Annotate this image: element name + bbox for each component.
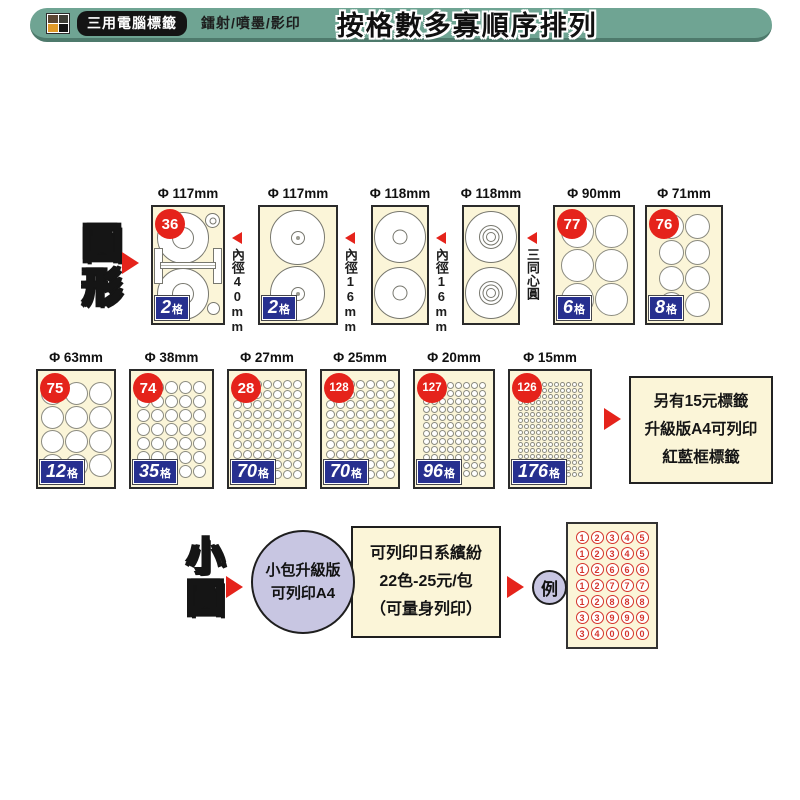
label-circle <box>293 400 302 409</box>
box-line: （可量身列印） <box>355 596 497 624</box>
label-circle <box>471 446 478 453</box>
label-circle <box>578 454 583 459</box>
label-circle <box>524 442 529 447</box>
label-circle <box>560 430 565 435</box>
label-circle <box>346 430 355 439</box>
spool-bar <box>160 262 216 269</box>
label-circle <box>89 454 112 477</box>
example-number-circle: 9 <box>636 611 649 624</box>
label-circle <box>560 382 565 387</box>
example-number-circle: 6 <box>621 563 634 576</box>
label-circle <box>233 430 242 439</box>
label-circle <box>326 440 335 449</box>
inner-diameter-annotation: 三同心圓 <box>523 232 541 300</box>
cell-count-number: 70 <box>330 461 350 482</box>
cd-ring <box>486 288 496 298</box>
cell-count-number: 176 <box>518 461 548 482</box>
logo-square <box>59 24 69 32</box>
label-circle <box>566 448 571 453</box>
diameter-label: Φ 38mm <box>145 350 199 366</box>
arrow-left-icon <box>527 232 537 244</box>
label-circle <box>518 418 523 423</box>
label-circle <box>179 395 192 408</box>
label-circle <box>530 424 535 429</box>
label-sheet-card: Φ 38mm7435格 <box>129 350 214 489</box>
label-circle <box>165 437 178 450</box>
label-circle <box>578 400 583 405</box>
inner-diameter-annotation: 內徑40mm <box>228 232 246 334</box>
label-circle <box>273 410 282 419</box>
label-circle <box>283 430 292 439</box>
label-circle <box>326 420 335 429</box>
cell-count-badge: 70格 <box>324 460 368 484</box>
bubble-line: 可列印A4 <box>271 582 335 605</box>
cell-count-badge: 176格 <box>512 460 566 484</box>
example-number-circle: 2 <box>591 595 604 608</box>
logo-square <box>48 24 58 32</box>
label-circle <box>273 440 282 449</box>
label-circle <box>572 394 577 399</box>
label-sheet: 7435格 <box>129 369 214 489</box>
label-circle <box>263 450 272 459</box>
example-number-circle: 3 <box>576 627 589 640</box>
label-circle <box>463 382 470 389</box>
example-number-circle: 2 <box>591 547 604 560</box>
label-circle <box>463 422 470 429</box>
label-circle <box>578 418 583 423</box>
label-sheet: 768格 <box>645 205 723 325</box>
label-circle <box>356 420 365 429</box>
label-sheet-card: Φ 117mm362格 <box>151 186 225 325</box>
label-circle <box>572 388 577 393</box>
cell-count-number: 70 <box>237 461 257 482</box>
label-circle <box>566 388 571 393</box>
cell-count-badge: 12格 <box>40 460 84 484</box>
label-circle <box>376 470 385 479</box>
label-circle <box>386 470 395 479</box>
label-circle <box>193 437 206 450</box>
cell-count-unit: 格 <box>160 465 171 481</box>
label-circle <box>548 448 553 453</box>
label-circle <box>471 422 478 429</box>
label-circle <box>524 418 529 423</box>
label-circle <box>179 437 192 450</box>
diameter-label: Φ 118mm <box>461 186 522 202</box>
header-bar: 三用電腦標籤 鐳射/噴墨/影印 按格數多寡順序排列 <box>30 8 772 42</box>
logo-square <box>59 15 69 23</box>
label-circle <box>524 406 529 411</box>
label-circle <box>479 462 486 469</box>
label-circle <box>293 470 302 479</box>
example-number-circle: 1 <box>576 595 589 608</box>
label-circle <box>471 414 478 421</box>
label-circle <box>283 450 292 459</box>
small-round-row: 小圓 小包升級版 可列印A4 可列印日系繽紛 22色-25元/包 （可量身列印）… <box>182 520 658 649</box>
label-circle <box>41 406 64 429</box>
label-circle <box>578 424 583 429</box>
label-circle <box>578 382 583 387</box>
label-circle <box>65 406 88 429</box>
label-circle <box>518 412 523 417</box>
label-circle <box>578 448 583 453</box>
arrow-right-icon <box>604 408 621 430</box>
label-circle <box>542 418 547 423</box>
label-circle <box>253 430 262 439</box>
label-circle <box>293 420 302 429</box>
label-sheet <box>462 205 520 325</box>
label-circle <box>386 400 395 409</box>
label-circle <box>463 430 470 437</box>
label-circle <box>273 430 282 439</box>
label-circle <box>455 430 462 437</box>
label-circle <box>455 438 462 445</box>
diameter-label: Φ 90mm <box>567 186 621 202</box>
label-circle <box>423 422 430 429</box>
small-circle <box>207 302 220 315</box>
label-circle <box>463 462 470 469</box>
label-circle <box>572 406 577 411</box>
label-circle <box>536 406 541 411</box>
label-circle <box>548 430 553 435</box>
arrow-left-icon <box>232 232 242 244</box>
cell-count-unit: 格 <box>574 301 585 317</box>
arrow-left-icon <box>436 232 446 244</box>
label-circle <box>561 249 594 282</box>
arrow-right-icon <box>122 252 139 274</box>
label-sheet-card: Φ 25mm12870格 <box>320 350 400 489</box>
label-circle <box>439 438 446 445</box>
label-circle <box>530 406 535 411</box>
label-circle <box>554 454 559 459</box>
label-circle <box>65 430 88 453</box>
label-circle <box>566 466 571 471</box>
label-circle <box>336 430 345 439</box>
example-number-circle: 5 <box>636 531 649 544</box>
label-circle <box>243 440 252 449</box>
label-circle <box>548 442 553 447</box>
print-types-label: 鐳射/噴墨/影印 <box>201 13 301 33</box>
label-circle <box>572 436 577 441</box>
label-circle <box>572 472 577 477</box>
label-circle <box>193 451 206 464</box>
example-number-circle: 3 <box>606 531 619 544</box>
label-circle <box>283 400 292 409</box>
annotation-text: 內徑16mm <box>434 248 448 334</box>
label-circle <box>542 448 547 453</box>
label-circle <box>263 400 272 409</box>
label-circle <box>376 410 385 419</box>
label-circle <box>463 406 470 413</box>
label-circle <box>566 400 571 405</box>
label-circle <box>560 412 565 417</box>
label-circle <box>479 454 486 461</box>
label-circle <box>518 442 523 447</box>
label-circle <box>548 418 553 423</box>
label-circle <box>447 382 454 389</box>
label-sheet-card: Φ 63mm7512格 <box>36 350 116 489</box>
label-circle <box>524 448 529 453</box>
label-circle <box>542 382 547 387</box>
label-circle <box>548 394 553 399</box>
color-pack-box: 可列印日系繽紛 22色-25元/包 （可量身列印） <box>351 526 501 638</box>
label-circle <box>447 406 454 413</box>
label-circle <box>346 450 355 459</box>
label-circle <box>283 420 292 429</box>
label-circle <box>293 430 302 439</box>
label-circle <box>578 394 583 399</box>
label-circle <box>439 422 446 429</box>
label-circle <box>179 451 192 464</box>
label-circle <box>560 448 565 453</box>
label-circle <box>151 437 164 450</box>
example-number-circle: 8 <box>636 595 649 608</box>
label-circle <box>376 400 385 409</box>
label-circle <box>423 406 430 413</box>
cd-label <box>465 267 517 319</box>
label-circle <box>595 283 628 316</box>
label-circle <box>193 465 206 478</box>
logo-square <box>48 15 58 23</box>
label-circle <box>548 412 553 417</box>
label-circle <box>554 418 559 423</box>
cell-count-unit: 格 <box>351 465 362 481</box>
item-number-badge: 28 <box>231 373 261 403</box>
label-circle <box>193 409 206 422</box>
label-circle <box>366 440 375 449</box>
label-circle <box>293 460 302 469</box>
box-line: 22色-25元/包 <box>355 568 497 596</box>
label-circle <box>193 381 206 394</box>
label-circle <box>233 450 242 459</box>
label-circle <box>542 406 547 411</box>
label-circle <box>326 450 335 459</box>
label-circle <box>356 440 365 449</box>
label-circle <box>479 406 486 413</box>
label-circle <box>273 390 282 399</box>
label-circle <box>263 410 272 419</box>
label-circle <box>685 214 710 239</box>
label-circle <box>548 406 553 411</box>
label-circle <box>137 437 150 450</box>
diameter-label: Φ 25mm <box>333 350 387 366</box>
item-number-badge: 126 <box>512 373 542 403</box>
label-circle <box>572 430 577 435</box>
label-circle <box>542 436 547 441</box>
example-number-circle: 7 <box>621 579 634 592</box>
label-circle <box>554 412 559 417</box>
label-circle <box>685 240 710 265</box>
label-circle <box>376 440 385 449</box>
label-circle <box>542 388 547 393</box>
label-circle <box>572 424 577 429</box>
label-circle <box>366 380 375 389</box>
cell-count-badge: 96格 <box>417 460 461 484</box>
cd-center-dot <box>296 292 300 296</box>
item-number-badge: 75 <box>40 373 70 403</box>
cell-count-unit: 格 <box>279 301 290 317</box>
label-circle <box>431 422 438 429</box>
label-circle <box>542 412 547 417</box>
label-circle <box>165 423 178 436</box>
label-circle <box>578 436 583 441</box>
label-circle <box>554 448 559 453</box>
item-number-badge: 36 <box>155 209 185 239</box>
label-circle <box>578 430 583 435</box>
label-circle <box>366 430 375 439</box>
label-circle <box>151 423 164 436</box>
label-circle <box>455 422 462 429</box>
label-circle <box>560 394 565 399</box>
label-sheet-card: Φ 27mm2870格 <box>227 350 307 489</box>
label-circle <box>386 420 395 429</box>
label-circle <box>566 430 571 435</box>
label-sheet-card: Φ 71mm768格 <box>645 186 723 325</box>
label-circle <box>471 390 478 397</box>
label-circle <box>366 400 375 409</box>
label-circle <box>243 450 252 459</box>
label-circle <box>137 423 150 436</box>
label-circle <box>479 414 486 421</box>
label-circle <box>554 442 559 447</box>
label-circle <box>479 446 486 453</box>
label-sheet-card: Φ 90mm776格 <box>553 186 635 325</box>
label-circle <box>386 440 395 449</box>
cd-ring <box>486 232 496 242</box>
label-circle <box>524 454 529 459</box>
label-circle <box>243 420 252 429</box>
annotation-text: 內徑16mm <box>343 248 357 334</box>
label-circle <box>447 446 454 453</box>
label-circle <box>536 412 541 417</box>
label-circle <box>566 442 571 447</box>
label-circle <box>423 438 430 445</box>
label-circle <box>524 430 529 435</box>
round-cards: Φ 117mm362格內徑40mmΦ 117mm2格內徑16mmΦ 118mm內… <box>151 186 723 334</box>
example-number-circle: 1 <box>576 579 589 592</box>
cell-count-number: 12 <box>46 461 66 482</box>
label-sheet: 12796格 <box>413 369 495 489</box>
label-circle <box>376 420 385 429</box>
label-circle <box>560 400 565 405</box>
label-circle <box>151 409 164 422</box>
label-circle <box>431 414 438 421</box>
label-circle <box>346 420 355 429</box>
label-circle <box>463 438 470 445</box>
example-number-circle: 1 <box>576 531 589 544</box>
brand-badge: 三用電腦標籤 <box>77 11 187 36</box>
label-circle <box>293 380 302 389</box>
cell-count-badge: 2格 <box>262 296 296 320</box>
diameter-label: Φ 71mm <box>657 186 711 202</box>
label-circle <box>386 460 395 469</box>
label-circle <box>346 440 355 449</box>
label-circle <box>542 424 547 429</box>
cd-label <box>465 211 517 263</box>
label-circle <box>356 450 365 459</box>
label-circle <box>530 430 535 435</box>
label-circle <box>273 380 282 389</box>
example-number-circle: 2 <box>591 579 604 592</box>
diameter-label: Φ 27mm <box>240 350 294 366</box>
label-circle <box>530 418 535 423</box>
label-circle <box>479 390 486 397</box>
label-sheet-card: Φ 20mm12796格 <box>413 350 495 489</box>
label-circle <box>356 380 365 389</box>
example-number-circle: 4 <box>621 547 634 560</box>
label-circle <box>447 438 454 445</box>
label-circle <box>566 418 571 423</box>
label-circle <box>89 406 112 429</box>
label-circle <box>572 400 577 405</box>
label-circle <box>179 381 192 394</box>
label-circle <box>179 409 192 422</box>
label-circle <box>336 450 345 459</box>
item-number-badge: 128 <box>324 373 354 403</box>
label-circle <box>530 448 535 453</box>
label-circle <box>536 454 541 459</box>
cell-count-unit: 格 <box>172 301 183 317</box>
label-circle <box>263 380 272 389</box>
label-circle <box>578 460 583 465</box>
label-circle <box>659 240 684 265</box>
item-number-badge: 77 <box>557 209 587 239</box>
example-number-circle: 5 <box>636 547 649 560</box>
cell-count-number: 2 <box>161 297 171 318</box>
label-circle <box>366 450 375 459</box>
label-circle <box>560 418 565 423</box>
label-circle <box>455 382 462 389</box>
example-number-circle: 2 <box>591 531 604 544</box>
label-circle <box>548 454 553 459</box>
label-circle <box>243 430 252 439</box>
label-circle <box>554 388 559 393</box>
inner-diameter-annotation: 內徑16mm <box>432 232 450 334</box>
example-label-sheet: 12345123451266612777128883399934000 <box>566 522 658 649</box>
label-circle <box>455 446 462 453</box>
label-circle <box>578 412 583 417</box>
label-sheet: 776格 <box>553 205 635 325</box>
cell-count-unit: 格 <box>549 465 560 481</box>
label-circle <box>566 394 571 399</box>
label-circle <box>366 420 375 429</box>
label-circle <box>536 400 541 405</box>
cell-count-unit: 格 <box>666 301 677 317</box>
label-circle <box>165 381 178 394</box>
example-number-circle: 0 <box>621 627 634 640</box>
label-circle <box>89 382 112 405</box>
label-circle <box>165 395 178 408</box>
label-sheet: 362格 <box>151 205 225 325</box>
label-circle <box>283 380 292 389</box>
label-circle <box>530 442 535 447</box>
label-circle <box>273 450 282 459</box>
label-circle <box>659 266 684 291</box>
diameter-label: Φ 20mm <box>427 350 481 366</box>
label-circle <box>572 418 577 423</box>
label-circle <box>518 406 523 411</box>
annotation-text: 內徑40mm <box>230 248 244 334</box>
label-circle <box>439 430 446 437</box>
label-circle <box>566 436 571 441</box>
label-circle <box>572 460 577 465</box>
label-circle <box>293 390 302 399</box>
label-circle <box>283 460 292 469</box>
cd-hole <box>291 231 305 245</box>
cell-count-number: 96 <box>423 461 443 482</box>
cd-hole <box>393 286 408 301</box>
label-circle <box>455 406 462 413</box>
label-circle <box>193 395 206 408</box>
